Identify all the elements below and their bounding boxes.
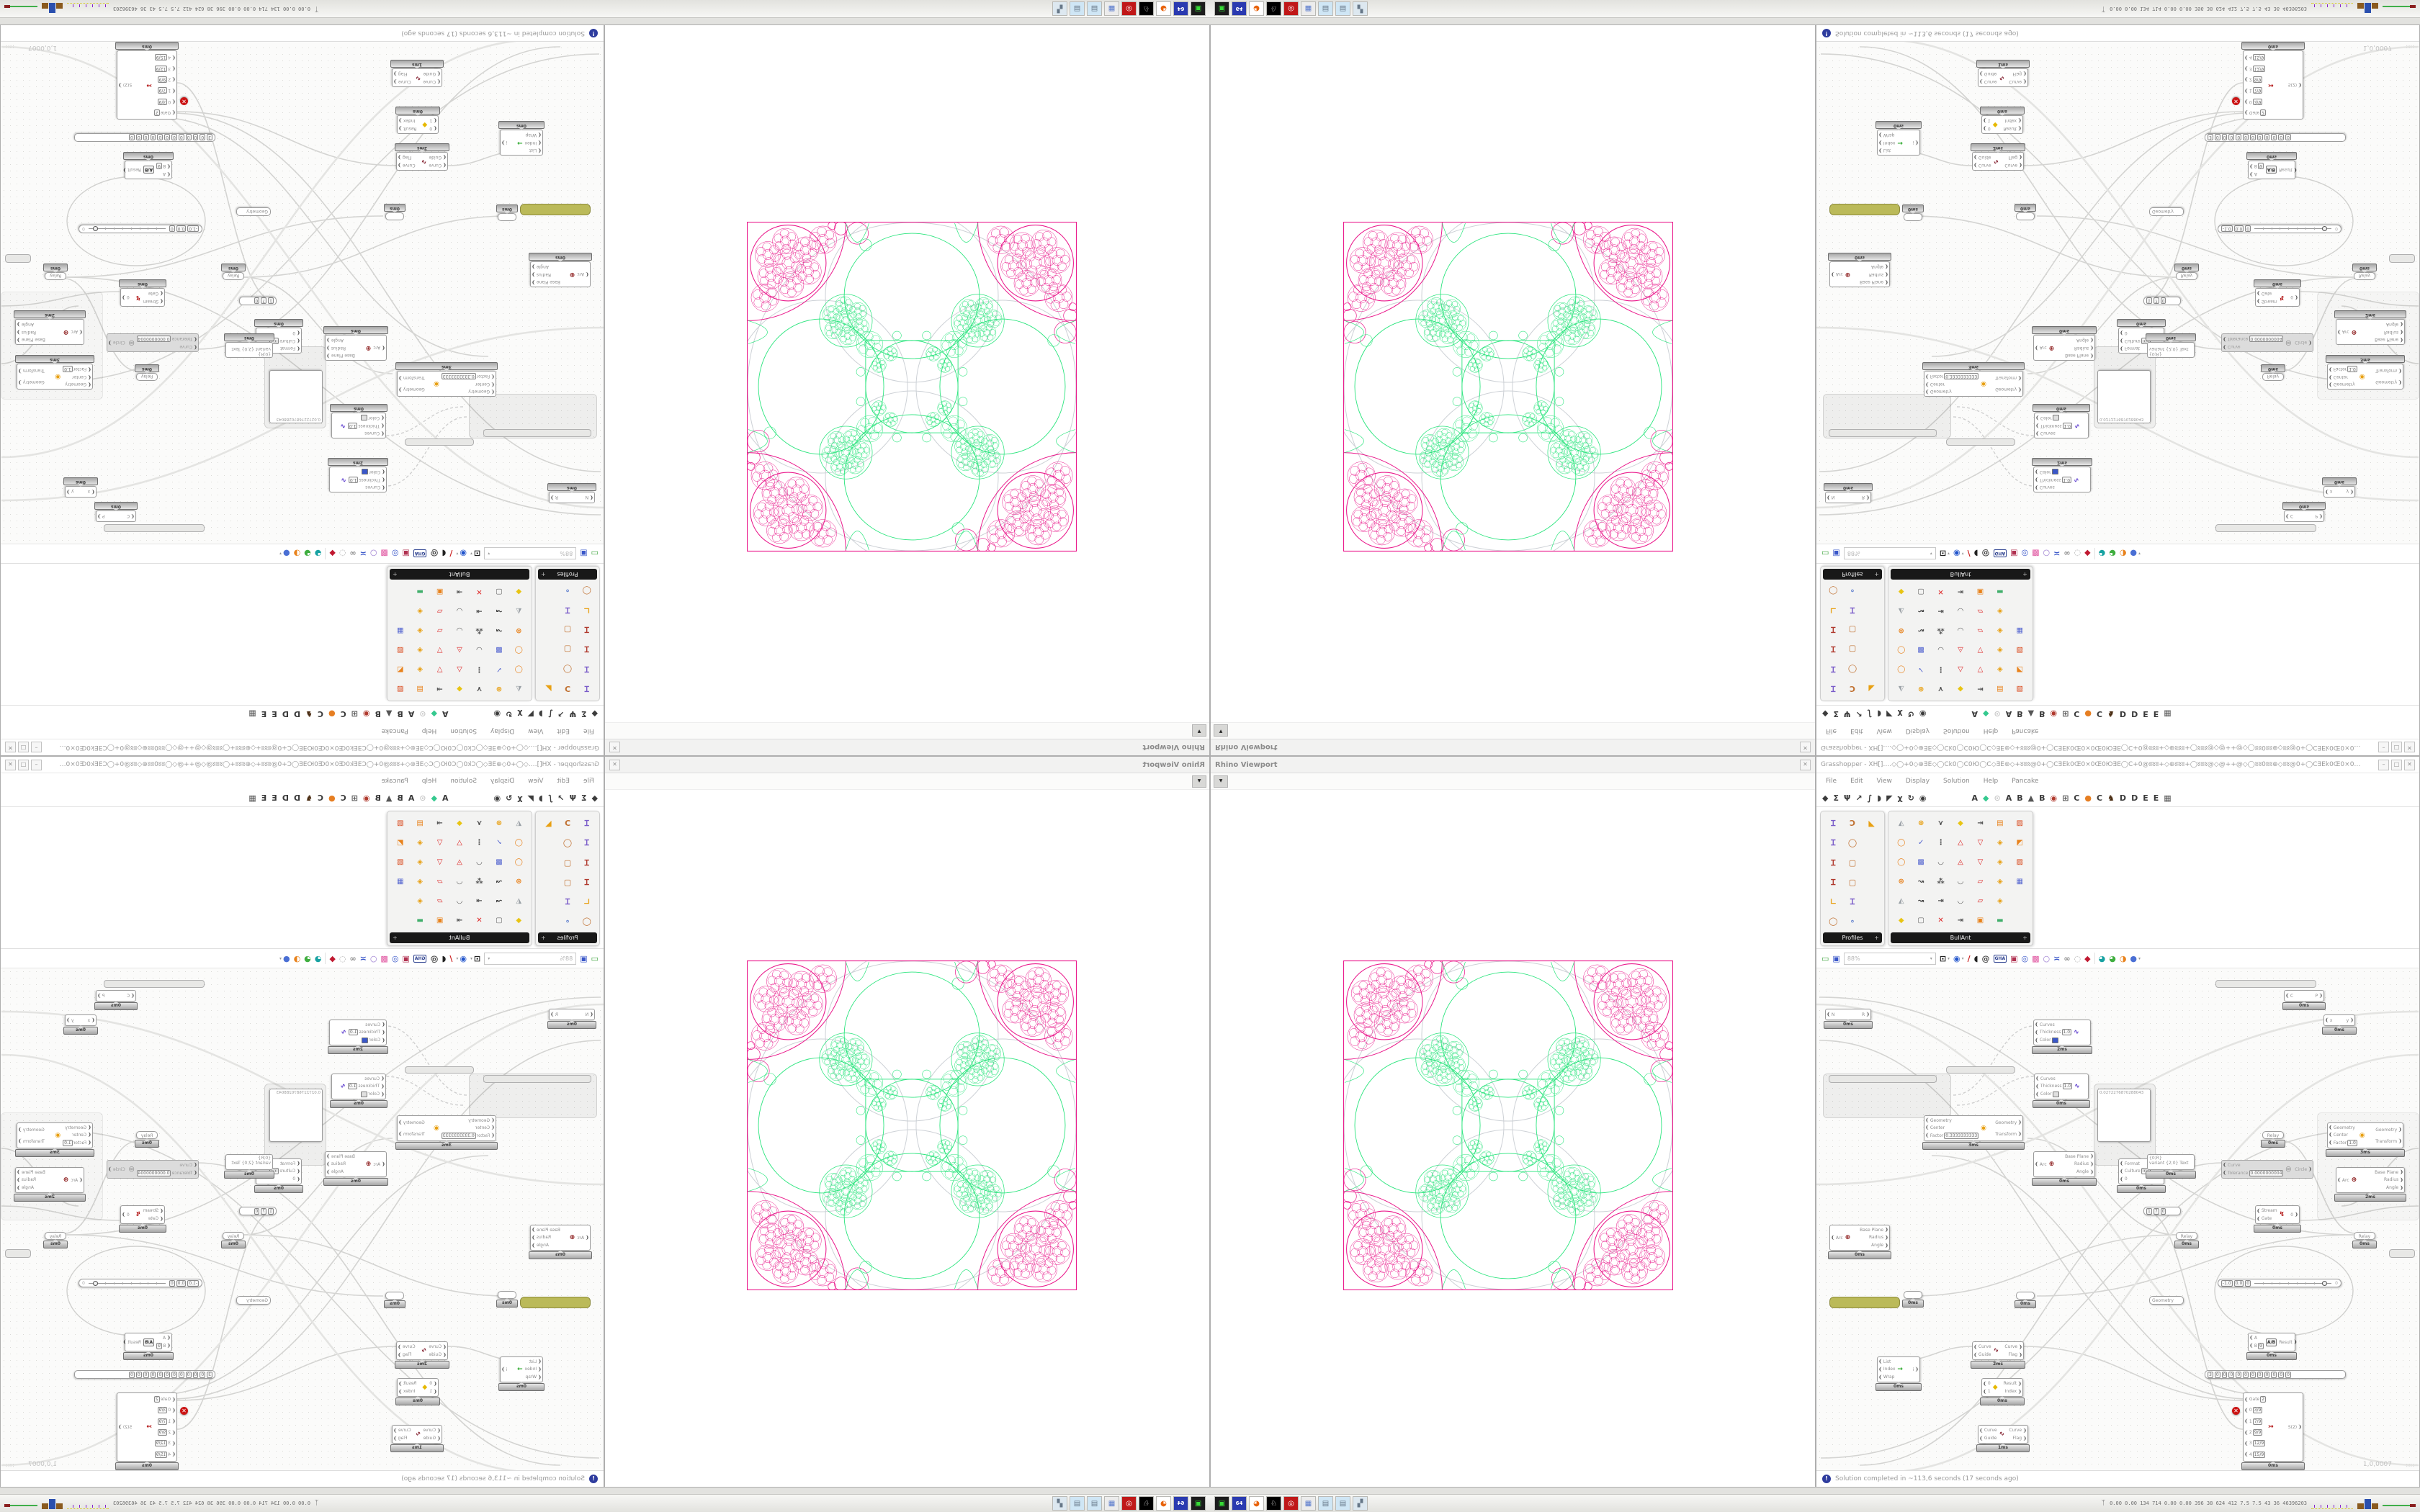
input-port-grip[interactable]: ❨	[442, 1352, 447, 1358]
flip-curve[interactable]: ❨Curve❨Guide∿Curve❩Flag❩1ms	[1978, 1425, 2028, 1444]
input-port-grip[interactable]: ❨	[436, 79, 441, 85]
category-tab-letter-a[interactable]: A	[2006, 793, 2012, 803]
output-port-grip[interactable]: ❩	[2399, 337, 2403, 343]
viewport-dropdown-button[interactable]: ▼	[1214, 725, 1228, 737]
input-port-grip[interactable]: ❨	[1973, 155, 1978, 161]
input-port-grip[interactable]: ❨	[2325, 489, 2329, 495]
component-icon[interactable]: ⋮	[1931, 660, 1950, 679]
rhino-title-bar[interactable]: Rhino Viewport ✕	[605, 757, 1209, 773]
category-tab-icon[interactable]: ∫	[1868, 710, 1873, 719]
color-swatch[interactable]	[361, 415, 367, 420]
category-tab-icon[interactable]: ◆	[1983, 710, 1989, 719]
window-red-dot-icon[interactable]: ▣	[2010, 954, 2017, 963]
output-port-grip[interactable]: ❩	[2018, 163, 2022, 168]
category-tab-icon[interactable]: ↗	[557, 793, 564, 803]
menu-edit[interactable]: Edit	[557, 727, 570, 734]
gha-assembly-icon[interactable]: GHA	[1994, 550, 2007, 558]
output-port-grip[interactable]: ❩	[501, 140, 506, 145]
category-tab-letter-e[interactable]: E	[261, 793, 267, 803]
flip-curve[interactable]: ❨Curve❨Guide∿Curve❩Flag❩1ms	[392, 1425, 442, 1444]
component-icon[interactable]: ▨	[390, 679, 410, 698]
menu-file[interactable]: File	[1826, 778, 1837, 785]
internalise-icon[interactable]: @	[1982, 954, 1990, 963]
menu-view[interactable]: View	[1877, 727, 1892, 734]
category-tab-icon[interactable]: ◗	[1877, 793, 1881, 803]
custom-preview-lineweights[interactable]: ❨Curves❨Thickness1.0❨Color∿0ms	[331, 1074, 386, 1099]
input-port-grip[interactable]: ❨	[79, 1177, 83, 1183]
input-port-grip[interactable]: ❨	[1878, 148, 1883, 153]
value-chip[interactable]: 1.0	[348, 423, 358, 429]
output-port-grip[interactable]: ❩	[2017, 126, 2022, 132]
balloon-icon[interactable]: ○	[370, 549, 377, 559]
flip-curve[interactable]: ❨Curve❨Guide∿Curve❩Flag❩1ms	[392, 68, 442, 87]
component-icon[interactable]: ▨	[2010, 814, 2030, 833]
input-port-grip[interactable]: ❨	[2035, 1076, 2040, 1081]
output-port-grip[interactable]: ❩	[97, 513, 102, 519]
category-tab-icon[interactable]: Ψ	[1844, 793, 1850, 803]
component-icon[interactable]: ▢	[558, 620, 578, 639]
menu-edit[interactable]: Edit	[1850, 727, 1863, 734]
relay[interactable]: Relay0ms	[136, 373, 158, 381]
component-icon[interactable]: ◭	[509, 679, 529, 698]
preview-off-icon[interactable]: ◕	[2099, 549, 2106, 559]
category-tab-icon[interactable]: Ψ	[1844, 710, 1850, 719]
output-port-grip[interactable]: ❩	[2022, 79, 2027, 85]
output-port-grip[interactable]: ❩	[2398, 379, 2402, 385]
category-tab-icon[interactable]: ◆	[592, 710, 598, 719]
input-port-grip[interactable]: ❨	[1878, 1359, 1883, 1364]
custom-preview-lineweights[interactable]: ❨Curves❨Thickness1.0❨Color∿2ms	[2033, 467, 2091, 492]
relay[interactable]: Relay0ms	[223, 272, 244, 280]
input-port-grip[interactable]: ❨	[2035, 469, 2039, 474]
component-icon[interactable]: ◈	[1990, 891, 2009, 911]
dropdown-caret-icon[interactable]: ▾	[1962, 552, 1964, 557]
value-chip[interactable]: 9	[156, 163, 162, 169]
category-tab-letter-a[interactable]: A	[2006, 710, 2012, 719]
output-port-grip[interactable]: ❩	[532, 1227, 536, 1233]
gem-icon[interactable]: ◆	[2084, 549, 2090, 559]
value-chip[interactable]: 1.0	[2347, 1140, 2357, 1146]
component-icon[interactable]: ◆	[449, 679, 469, 698]
input-port-grip[interactable]: ❨	[2244, 1418, 2249, 1424]
output-port-grip[interactable]: ❩	[2349, 489, 2354, 495]
component-icon[interactable]: ⋎	[1931, 679, 1950, 698]
component-icon[interactable]: ◭	[509, 601, 529, 621]
category-tab-icon[interactable]: ↻	[1908, 793, 1914, 803]
component-icon[interactable]: ∘	[1843, 582, 1863, 600]
dropdown-caret-icon[interactable]: ▾	[1948, 956, 1950, 961]
component-icon[interactable]: ⊛	[489, 814, 508, 833]
preview-eye-icon[interactable]: ◉	[1953, 549, 1960, 559]
cluster-icon[interactable]: ∞	[349, 954, 356, 963]
component-icon[interactable]: ▨	[2010, 679, 2030, 698]
component-icon[interactable]: ◭	[1891, 601, 1911, 621]
output-port-grip[interactable]: ❩	[398, 1131, 403, 1137]
value-chip[interactable]: 2	[154, 1396, 160, 1403]
value-chip[interactable]: 3/9	[158, 1407, 168, 1413]
preview-custom-icon[interactable]: ●	[283, 549, 290, 559]
component-icon[interactable]: Ɪ	[1824, 814, 1843, 833]
category-tab-letter-e[interactable]: E	[261, 710, 267, 719]
slider-value-chip[interactable]: 0	[169, 1280, 175, 1287]
component-icon[interactable]: ▱	[430, 621, 449, 640]
category-tab-icon[interactable]: ◉	[494, 793, 501, 803]
output-port-grip[interactable]: ❩	[17, 329, 21, 335]
zoom-level-field[interactable]: 88%▾	[484, 953, 576, 965]
category-tab-icon[interactable]: Ψ	[570, 793, 576, 803]
component-icon[interactable]: △	[1950, 660, 1970, 679]
component-icon[interactable]: ▢	[489, 582, 508, 601]
division[interactable]: ❨A❨B9A/BResult❩0ms	[2248, 1333, 2295, 1351]
slider-value-chip[interactable]: -1.0	[2221, 1280, 2233, 1287]
component-icon[interactable]: ▽	[430, 640, 449, 660]
component-icon[interactable]: ▨	[390, 814, 410, 833]
custom-preview-lineweights[interactable]: ❨Curves❨Thickness1.0❨Color∿0ms	[2034, 1074, 2089, 1099]
input-port-grip[interactable]: ❨	[2244, 1452, 2249, 1457]
minimize-icon[interactable]: –	[2378, 742, 2389, 753]
component-icon[interactable]: ▢	[558, 873, 578, 892]
output-port-grip[interactable]: ❩	[122, 294, 126, 300]
maximize-icon[interactable]: □	[18, 760, 29, 770]
input-port-grip[interactable]: ❨	[1925, 374, 1930, 379]
finder-icon[interactable]: ◎	[2022, 954, 2029, 963]
component-icon[interactable]: Ɪ	[1824, 659, 1843, 678]
dropdown-caret-icon[interactable]: ▾	[279, 956, 282, 961]
scale-component[interactable]: ❨Geometry❨Center❨Factor0.3333333333◉Geom…	[397, 371, 496, 397]
component-icon[interactable]: ⁂	[470, 621, 489, 640]
input-port-grip[interactable]: ❨	[2244, 109, 2249, 115]
wolf-launcher[interactable]: ♘	[1266, 1496, 1281, 1511]
flip-curve[interactable]: ❨Curve❨Guide∿Curve❩Flag❩2ms	[1972, 1341, 2024, 1360]
input-port-grip[interactable]: ❨	[193, 1162, 197, 1168]
input-port-grip[interactable]: ❨	[490, 382, 495, 387]
rings-icon[interactable]: ◌	[2074, 549, 2081, 559]
component-icon[interactable]: ∟	[1824, 892, 1843, 912]
collapsed-node[interactable]	[483, 1075, 591, 1083]
value-chip[interactable]: 0.0000000004	[2249, 336, 2284, 342]
category-tab-icon[interactable]: ∫	[548, 793, 553, 803]
component-icon[interactable]: ◆	[509, 911, 529, 930]
menu-solution[interactable]: Solution	[1943, 727, 1970, 734]
input-port-grip[interactable]: ❨	[171, 99, 176, 104]
calculator-launcher[interactable]: ▦	[1104, 1496, 1119, 1511]
input-port-grip[interactable]: ❨	[2329, 374, 2333, 380]
collapsed-node[interactable]	[5, 254, 31, 263]
value-chip[interactable]: 3/9	[2253, 1407, 2263, 1413]
category-tab-letter-b[interactable]: B	[2039, 793, 2045, 803]
category-tab-letter-d[interactable]: D	[294, 793, 300, 803]
component-icon[interactable]: ◯	[1891, 660, 1911, 679]
category-tab-icon[interactable]: ♞	[305, 710, 313, 719]
input-port-grip[interactable]: ❨	[1925, 1133, 1930, 1138]
output-port-grip[interactable]: ❩	[1884, 279, 1888, 285]
slider-value-chip[interactable]: -1.0	[187, 226, 199, 233]
minimize-icon[interactable]: –	[31, 742, 42, 753]
geometry-param[interactable]: Geometry	[236, 207, 271, 216]
input-port-grip[interactable]: ❨	[1983, 126, 1987, 132]
input-port-grip[interactable]: ❨	[537, 140, 542, 145]
text-tag[interactable]: {0;R}variant {2;0} Text0ms	[2147, 342, 2195, 358]
component-icon[interactable]: ▩	[1911, 852, 1930, 872]
digit-panel[interactable]: 170	[2143, 297, 2181, 305]
component-icon[interactable]: ◈	[1990, 660, 2009, 679]
collapsed-node[interactable]	[2215, 980, 2316, 988]
value-chip[interactable]: 7/9	[158, 87, 168, 94]
input-port-grip[interactable]: ❨	[296, 346, 300, 351]
component-icon[interactable]: ⁂	[1931, 872, 1950, 891]
relay[interactable]: Relay0ms	[2262, 1131, 2284, 1139]
component-icon[interactable]: ▢	[1843, 620, 1863, 639]
output-port-grip[interactable]: ❩	[17, 337, 21, 343]
output-port-grip[interactable]: ❩	[393, 71, 398, 77]
wolf-launcher[interactable]: ♘	[1266, 1, 1281, 16]
input-port-grip[interactable]: ❨	[2329, 1132, 2333, 1138]
output-port-grip[interactable]: ❩	[2398, 1127, 2402, 1133]
minimize-icon[interactable]: –	[2378, 760, 2389, 770]
component-icon[interactable]: ▱	[430, 601, 449, 621]
slider-value-chip[interactable]: 0.0	[2234, 1280, 2244, 1287]
scale-component[interactable]: ❨Geometry❨Center❨Factor1.0◉Geometry❩Tran…	[2327, 1122, 2403, 1148]
component-icon[interactable]: Ɪ	[1824, 620, 1843, 639]
mystery-box-icon[interactable]: ▩	[2032, 549, 2039, 559]
component-icon[interactable]: ◡	[449, 601, 469, 621]
component-icon[interactable]: ↝	[1911, 891, 1930, 911]
gem-icon[interactable]: ◆	[329, 954, 335, 963]
input-port-grip[interactable]: ❨	[2120, 1161, 2124, 1166]
save-file-icon[interactable]: ▣	[1832, 549, 1839, 559]
category-tab-icon[interactable]: ▦	[2164, 710, 2171, 719]
component-icon[interactable]: ◭	[509, 891, 529, 911]
output-port-grip[interactable]: ❩	[2293, 167, 2298, 173]
component-icon[interactable]: Ɪ	[577, 853, 596, 873]
category-tab-letter-c[interactable]: C	[2074, 793, 2079, 803]
output-port-grip[interactable]: ❩	[1884, 271, 1888, 277]
category-tab-icon[interactable]: ▲	[386, 793, 392, 803]
input-port-grip[interactable]: ❨	[1979, 71, 1984, 77]
input-port-grip[interactable]: ❨	[2035, 1038, 2039, 1043]
input-port-grip[interactable]: ❨	[166, 163, 171, 169]
input-port-grip[interactable]: ❨	[1973, 1352, 1978, 1358]
category-tab-icon[interactable]: ◗	[539, 710, 543, 719]
relay[interactable]: Relay0ms	[2176, 1232, 2197, 1240]
component-icon[interactable]: △	[449, 660, 469, 679]
component-icon[interactable]: ◈	[410, 660, 429, 679]
resize-grip[interactable]: ∷∷	[5, 1462, 14, 1469]
category-tab-letter-a[interactable]: A	[1971, 793, 1978, 803]
component-icon[interactable]: ▢	[558, 639, 578, 659]
category-tab-letter-b[interactable]: B	[375, 793, 381, 803]
menu-solution[interactable]: Solution	[450, 727, 477, 734]
output-port-grip[interactable]: ❩	[122, 1212, 126, 1218]
input-port-grip[interactable]: ❨	[1925, 389, 1930, 395]
flip-curve[interactable]: ❨Curve❨Guide∿Curve❩Flag❩1ms	[1978, 68, 2028, 87]
input-port-grip[interactable]: ❨	[87, 366, 91, 372]
input-port-grip[interactable]: ❨	[2035, 415, 2040, 420]
component-icon[interactable]: ▬	[410, 911, 429, 930]
input-port-grip[interactable]: ❨	[2257, 1208, 2261, 1214]
dropdown-caret-icon[interactable]: ▾	[456, 552, 458, 557]
relay[interactable]: 0ms	[1904, 213, 1922, 221]
input-port-grip[interactable]: ❨	[2035, 485, 2039, 490]
input-port-grip[interactable]: ❨	[1979, 79, 1984, 85]
menu-file[interactable]: File	[583, 727, 594, 734]
output-port-grip[interactable]: ❩	[2017, 1381, 2022, 1387]
value-chip[interactable]: 12/9	[2253, 1440, 2265, 1446]
component-icon[interactable]: ▨	[2010, 852, 2030, 872]
dropdown-caret-icon[interactable]: ▾	[470, 956, 472, 961]
output-port-grip[interactable]: ❩	[17, 321, 21, 327]
component-icon[interactable]: ◭	[1891, 679, 1911, 698]
close-icon[interactable]: ✕	[5, 760, 16, 770]
input-port-grip[interactable]: ❨	[2223, 344, 2227, 350]
preview-off-icon[interactable]: ◕	[315, 954, 322, 963]
preview-off-icon[interactable]: ◕	[315, 549, 322, 559]
value-chip[interactable]: 0.3333333333	[442, 373, 476, 379]
component-icon[interactable]: ▢	[1911, 582, 1930, 601]
category-tab-icon[interactable]: ↻	[1908, 710, 1914, 719]
category-tab-letter-b[interactable]: B	[2017, 793, 2022, 803]
value-chip[interactable]: 7/9	[2253, 1418, 2263, 1425]
category-tab-icon[interactable]: Σ	[1833, 710, 1839, 719]
component-icon[interactable]: ⋮	[1931, 833, 1950, 852]
palette-footer-bullant[interactable]: BullAnt+	[1891, 932, 2030, 943]
close-icon[interactable]: ✕	[1800, 742, 1811, 753]
component-icon[interactable]: ▢	[558, 853, 578, 873]
open-file-icon[interactable]: ▭	[591, 549, 599, 559]
output-port-grip[interactable]: ❩	[398, 163, 402, 168]
input-port-grip[interactable]: ❨	[1979, 1428, 1984, 1434]
grasshopper-canvas[interactable]: 1,0,0007 ∷∷ ❨Geometry❨Center❨Factor0.333…	[1, 42, 604, 544]
component-icon[interactable]: ◈	[410, 621, 429, 640]
preview-eye-icon[interactable]: ◉	[1953, 954, 1960, 963]
input-port-grip[interactable]: ❨	[442, 1344, 447, 1350]
preview-custom-icon[interactable]: ●	[2130, 954, 2137, 963]
robot-launcher[interactable]: ◎	[1121, 1, 1137, 16]
menu-display[interactable]: Display	[490, 778, 514, 785]
deconstruct-arc[interactable]: ❨Arc⊕Base Plane❩Radius❩Angle❩0ms	[325, 335, 387, 361]
close-icon[interactable]: ✕	[609, 760, 620, 770]
jump-wires-icon[interactable]: ≍	[2053, 954, 2060, 963]
input-port-grip[interactable]: ❨	[1878, 140, 1883, 145]
value-chip[interactable]: 12/9	[155, 66, 167, 72]
input-port-grip[interactable]: ❨	[171, 88, 176, 94]
input-port-grip[interactable]: ❨	[159, 1208, 163, 1214]
division[interactable]: ❨A❨B9A/BResult❩0ms	[125, 1333, 172, 1351]
gha-assembly-icon[interactable]: GHA	[413, 955, 427, 963]
collapsed-node[interactable]	[405, 438, 474, 446]
component-icon[interactable]: ⊛	[1911, 814, 1930, 833]
list-item[interactable]: ❨List❨Index❨Wrap→i❩0ms	[500, 130, 543, 156]
value-chip[interactable]: 9/9	[158, 76, 168, 83]
component-icon[interactable]: ◡	[1950, 872, 1970, 891]
input-port-grip[interactable]: ❨	[436, 71, 441, 77]
component-icon[interactable]: ◈	[410, 891, 429, 911]
component-icon[interactable]: ▢	[1911, 911, 1930, 930]
input-port-grip[interactable]: ❨	[380, 1076, 385, 1081]
input-port-grip[interactable]: ❨	[2325, 1017, 2329, 1023]
dropdown-caret-icon[interactable]: ▾	[1948, 552, 1950, 557]
category-tab-icon[interactable]: ⊞	[351, 793, 358, 803]
finder-icon[interactable]: ◎	[2022, 549, 2029, 559]
flip-curve[interactable]: ❨Curve❨Guide∿Curve❩Flag❩2ms	[1972, 152, 2024, 171]
preview-shaded-icon[interactable]: ◑	[2120, 954, 2127, 963]
component-icon[interactable]: ⁂	[470, 872, 489, 891]
value-chip[interactable]: 9	[156, 1343, 162, 1349]
component-icon[interactable]: ◬	[449, 852, 469, 872]
output-port-grip[interactable]: ❩	[2308, 1166, 2312, 1172]
component-icon[interactable]: Ɔ	[558, 814, 578, 833]
relay[interactable]: 0ms	[2016, 1292, 2035, 1300]
component-icon[interactable]: ∘	[1843, 912, 1863, 930]
component-icon[interactable]: Ɪ	[577, 679, 596, 698]
output-port-grip[interactable]: ❩	[122, 167, 127, 173]
relay[interactable]: 0ms	[498, 213, 516, 221]
component-icon[interactable]: ▤	[410, 814, 429, 833]
slider-knob[interactable]	[2322, 227, 2327, 232]
output-port-grip[interactable]: ❩	[398, 1352, 402, 1358]
component-icon[interactable]: Ɪ	[577, 659, 596, 678]
input-port-grip[interactable]: ❨	[433, 1381, 437, 1387]
calculator-launcher[interactable]: ▦	[1301, 1, 1316, 16]
robot-launcher[interactable]: ◎	[1121, 1496, 1137, 1511]
input-port-grip[interactable]: ❨	[1827, 1012, 1831, 1017]
category-tab-icon[interactable]: χ	[517, 793, 522, 803]
output-port-grip[interactable]: ❩	[393, 1436, 398, 1441]
value-chip[interactable]: 15/9	[155, 1452, 167, 1458]
relay[interactable]: Relay0ms	[45, 272, 66, 280]
value-chip[interactable]: 1.0	[63, 1140, 73, 1146]
cluster-icon[interactable]: ∞	[2063, 954, 2070, 963]
input-port-grip[interactable]: ❨	[2035, 423, 2040, 428]
value-chip[interactable]: 9	[2258, 1343, 2264, 1349]
pick-choose[interactable]: ❨0❨1◆Result❩Index❩0ms	[397, 115, 439, 134]
category-tab-letter-b[interactable]: B	[397, 710, 403, 719]
menu-help[interactable]: Help	[422, 727, 437, 734]
category-tab-icon[interactable]: Σ	[1833, 793, 1839, 803]
viewport-dropdown-button[interactable]: ▼	[1192, 725, 1206, 737]
small-node[interactable]: ❨NR❩0ms	[1825, 492, 1871, 503]
category-tab-letter-d[interactable]: D	[2120, 710, 2126, 719]
component-icon[interactable]: ▨	[390, 852, 410, 872]
output-port-grip[interactable]: ❩	[2022, 71, 2027, 77]
input-port-grip[interactable]: ❨	[171, 1397, 176, 1403]
close-icon[interactable]: ✕	[5, 742, 16, 753]
component-icon[interactable]: ⇥	[1931, 601, 1950, 621]
digit-panel[interactable]: 300000000000	[74, 1370, 215, 1379]
category-tab-icon[interactable]: ◆	[1983, 793, 1989, 803]
category-tab-icon[interactable]: ⊞	[2062, 710, 2069, 719]
component-icon[interactable]: ⇥	[1971, 814, 1990, 833]
category-tab-icon[interactable]: ◗	[539, 793, 543, 803]
jump-wires-icon[interactable]: ≍	[360, 954, 367, 963]
component-icon[interactable]: ↝	[489, 891, 508, 911]
input-port-grip[interactable]: ❨	[2223, 1170, 2227, 1176]
slider-knob[interactable]	[2322, 1281, 2327, 1286]
component-icon[interactable]: ⋎	[1931, 814, 1950, 833]
category-tab-icon[interactable]: ◤	[1886, 793, 1892, 803]
slider-knob[interactable]	[93, 227, 98, 232]
rhino-viewport-canvas[interactable]	[1211, 790, 1814, 1486]
input-port-grip[interactable]: ❨	[2257, 299, 2261, 305]
component-icon[interactable]: ◈	[1990, 601, 2009, 621]
terminal-launcher[interactable]: ▣	[1191, 1, 1206, 16]
scale-component[interactable]: ❨Geometry❨Center❨Factor0.3333333333◉Geom…	[397, 1115, 496, 1141]
output-port-grip[interactable]: ❩	[108, 1166, 112, 1172]
small-node[interactable]: ❨xy❩0ms	[65, 1014, 97, 1026]
grasshopper-canvas[interactable]: 1,0,0007 ∷∷ ❨Geometry❨Center❨Factor0.333…	[1, 968, 604, 1470]
menu-display[interactable]: Display	[1906, 727, 1930, 734]
component-icon[interactable]: ◡	[1950, 621, 1970, 640]
